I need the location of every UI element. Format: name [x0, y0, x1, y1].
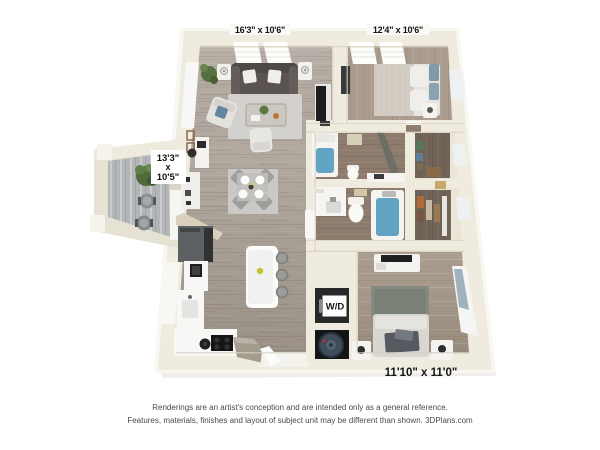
svg-text:x: x	[165, 162, 170, 172]
svg-text:12'4" x 10'6": 12'4" x 10'6"	[373, 25, 423, 35]
svg-text:11'10" x 11'0": 11'10" x 11'0"	[385, 367, 458, 379]
svg-text:Features, materials, finishes: Features, materials, finishes and layout…	[127, 416, 473, 425]
svg-text:Renderings are an artist's con: Renderings are an artist's conception an…	[152, 403, 448, 412]
svg-text:10'5": 10'5"	[157, 172, 180, 183]
svg-text:W/D: W/D	[326, 302, 345, 313]
svg-text:16'3" x 10'6": 16'3" x 10'6"	[235, 25, 285, 35]
